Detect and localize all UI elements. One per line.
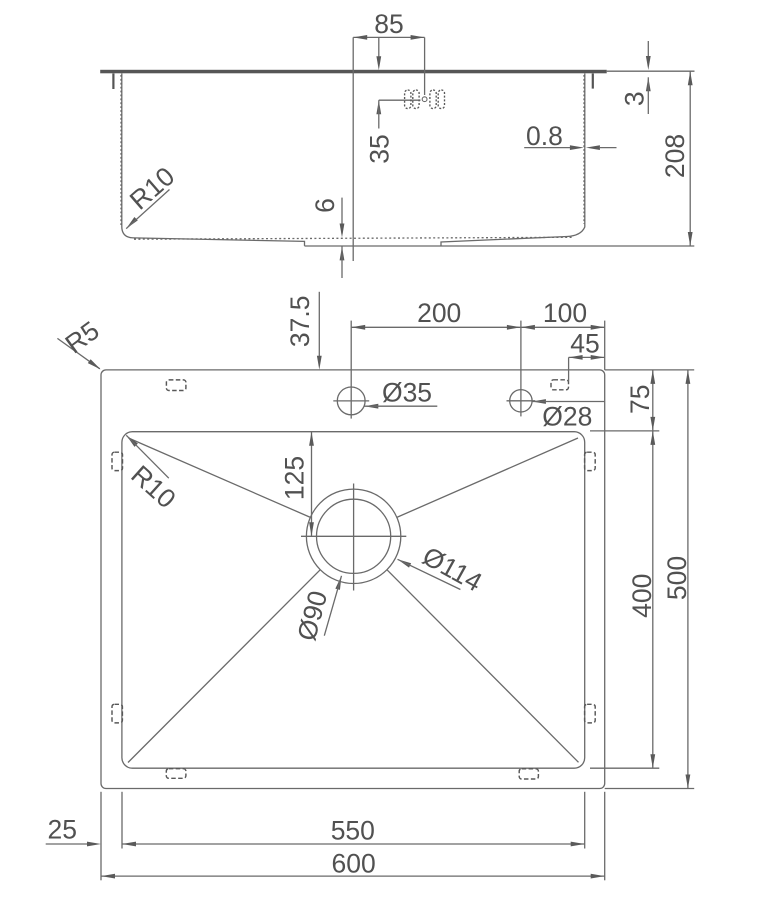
svg-text:100: 100 — [543, 298, 587, 328]
svg-text:200: 200 — [417, 298, 461, 328]
svg-text:550: 550 — [331, 816, 375, 846]
svg-text:3: 3 — [620, 91, 650, 106]
svg-text:125: 125 — [280, 456, 310, 500]
svg-text:85: 85 — [374, 9, 403, 39]
svg-text:400: 400 — [627, 574, 657, 618]
svg-text:500: 500 — [662, 556, 692, 600]
svg-text:6: 6 — [310, 198, 340, 213]
svg-text:25: 25 — [48, 815, 77, 845]
svg-text:37.5: 37.5 — [285, 296, 315, 348]
svg-text:R10: R10 — [125, 459, 181, 514]
svg-text:Ø35: Ø35 — [382, 377, 432, 407]
svg-text:45: 45 — [570, 329, 599, 359]
svg-text:208: 208 — [660, 134, 690, 178]
svg-text:Ø28: Ø28 — [542, 401, 592, 431]
svg-text:R5: R5 — [60, 315, 105, 359]
svg-text:Ø90: Ø90 — [291, 588, 333, 644]
svg-text:75: 75 — [625, 385, 655, 414]
svg-text:R10: R10 — [124, 161, 180, 216]
svg-text:35: 35 — [365, 134, 395, 163]
svg-text:0.8: 0.8 — [526, 121, 563, 151]
svg-text:Ø114: Ø114 — [418, 541, 488, 598]
svg-text:600: 600 — [331, 849, 375, 879]
